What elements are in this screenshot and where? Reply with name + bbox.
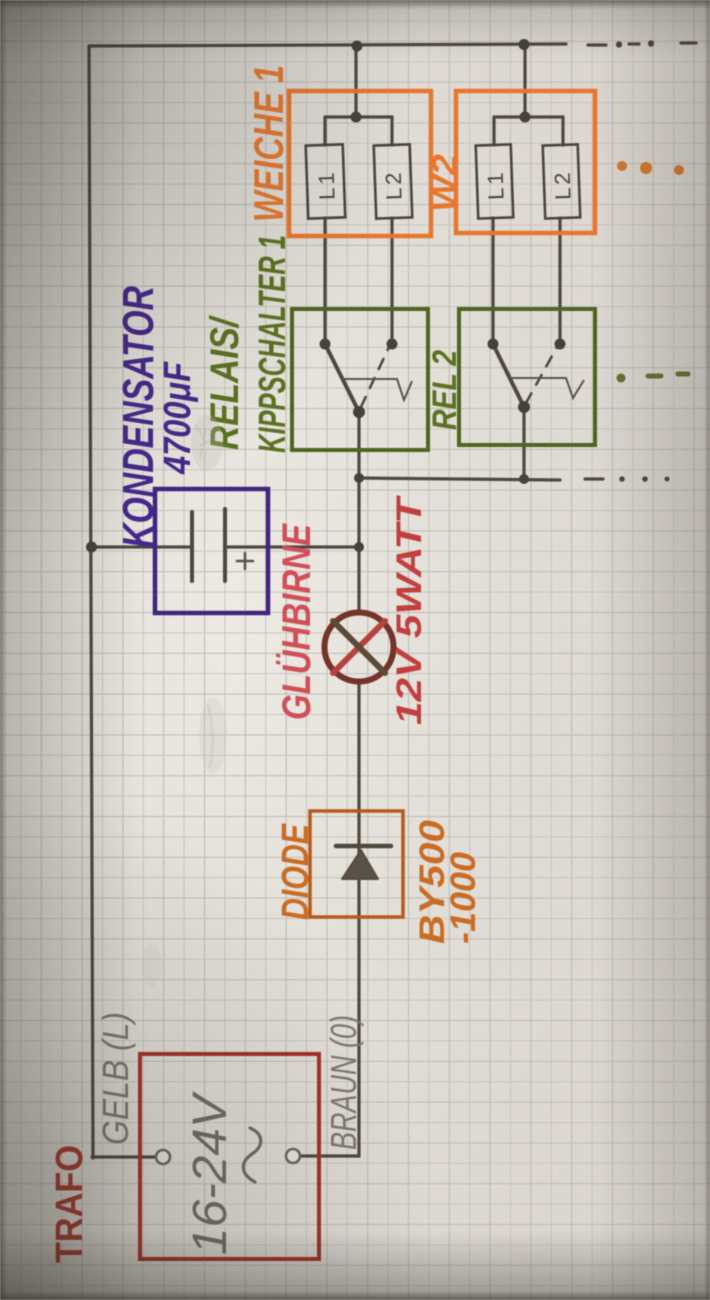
- svg-text:L1: L1: [483, 169, 509, 200]
- svg-text:REL 2: REL 2: [426, 350, 464, 430]
- svg-text:-1000: -1000: [444, 851, 483, 944]
- svg-text:L2: L2: [550, 169, 576, 200]
- svg-text:W2: W2: [426, 154, 464, 212]
